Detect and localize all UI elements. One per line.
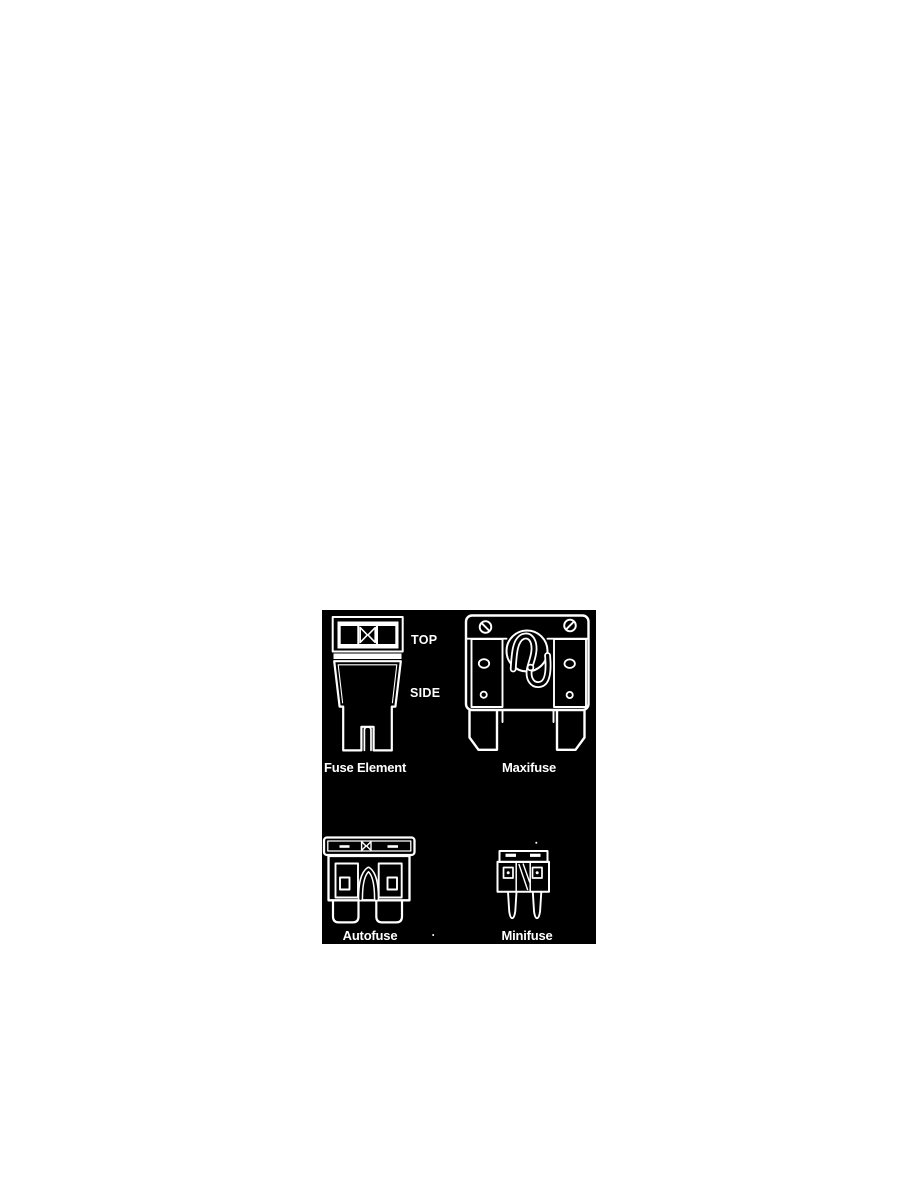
autofuse-label: Autofuse xyxy=(343,929,398,942)
manual-page: TOP SIDE Fuse Element Maxifuse Autofuse … xyxy=(0,0,918,1188)
maxifuse-left-blade xyxy=(470,711,498,750)
maxifuse-label: Maxifuse xyxy=(502,761,556,774)
scan-artifact-dot xyxy=(535,842,537,844)
fuse-types-line-art xyxy=(322,610,596,944)
fuse-types-figure xyxy=(322,610,596,944)
autofuse-right-blade xyxy=(376,901,402,923)
minifuse-left-blade xyxy=(508,892,517,918)
maxifuse-drawing xyxy=(466,616,589,750)
autofuse-left-blade xyxy=(333,901,359,923)
bowtie-element-icon xyxy=(362,842,371,851)
scan-artifact-dot xyxy=(432,934,434,936)
screw-head-icon-right xyxy=(564,620,576,632)
top-view-label: TOP xyxy=(411,634,437,647)
autofuse-drawing xyxy=(324,838,415,923)
side-view-label: SIDE xyxy=(410,687,440,700)
maxifuse-s-element xyxy=(513,636,548,685)
minifuse-right-blade xyxy=(533,892,542,918)
maxifuse-right-blade xyxy=(557,711,585,750)
fuse-element-top-view xyxy=(333,617,403,652)
fuse-element-label: Fuse Element xyxy=(324,761,406,774)
screw-head-icon-left xyxy=(480,621,492,633)
autofuse-arch-element xyxy=(361,869,377,899)
minifuse-drawing xyxy=(498,851,550,918)
minifuse-label: Minifuse xyxy=(501,929,552,942)
fuse-element-side-view xyxy=(334,654,402,751)
